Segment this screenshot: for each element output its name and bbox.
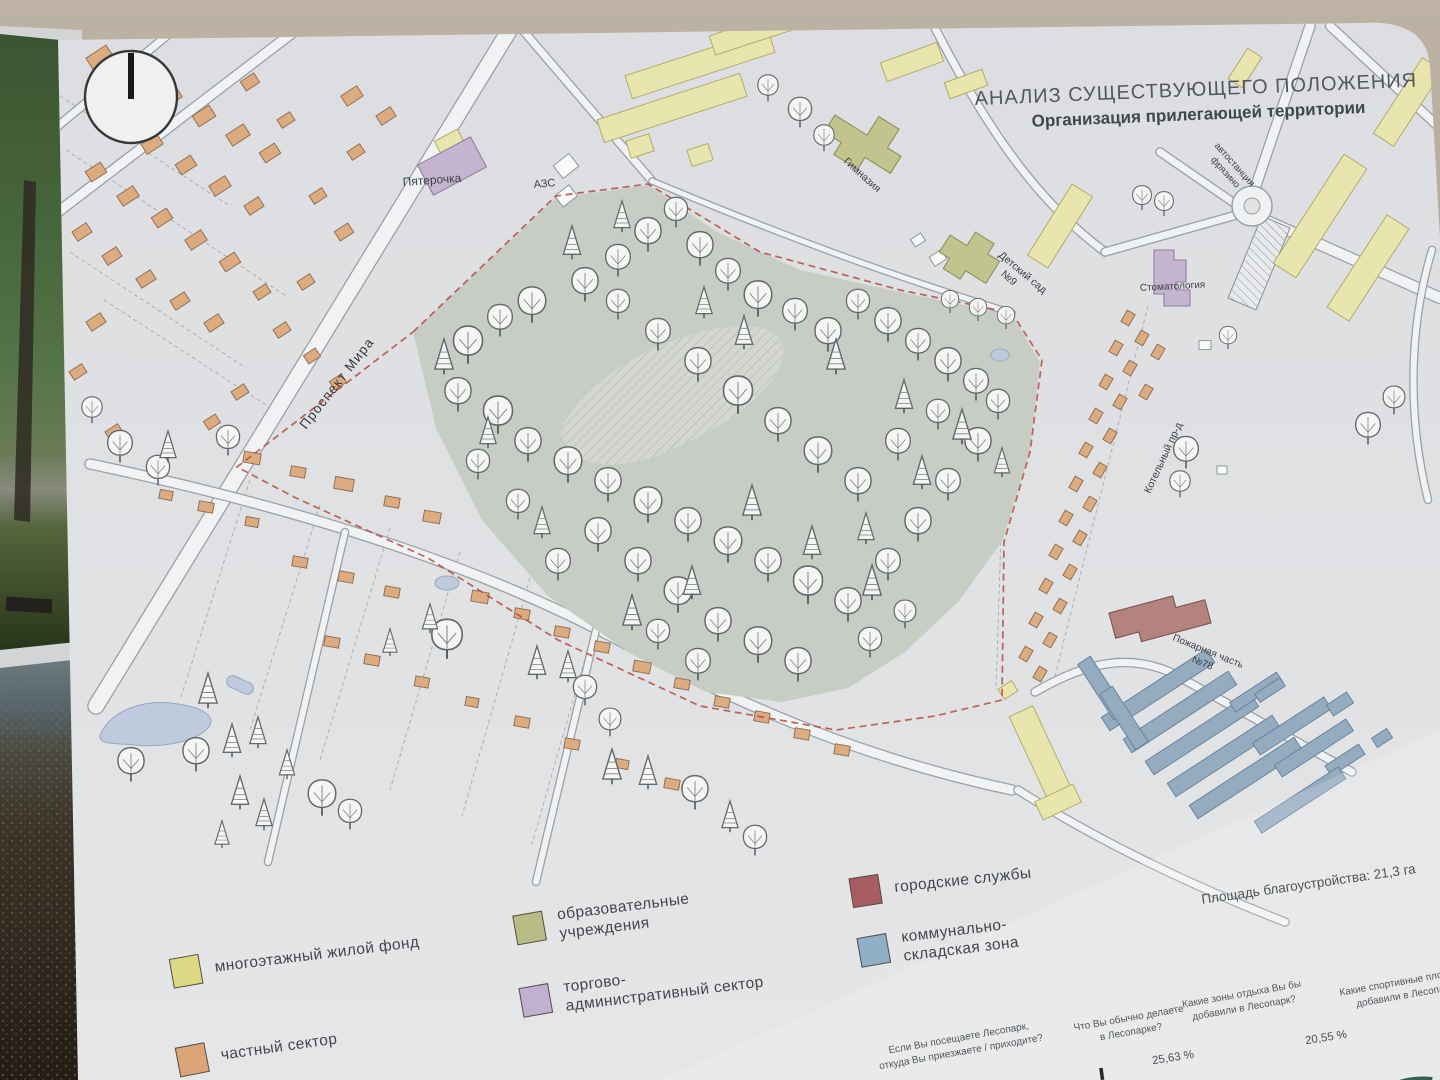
legend-swatch-services bbox=[848, 874, 882, 908]
legend-swatch-commercial bbox=[518, 983, 553, 1018]
legend-swatch-education bbox=[512, 911, 547, 946]
legend-swatch-private bbox=[175, 1042, 210, 1077]
roundabout bbox=[1232, 186, 1272, 226]
legend-swatch-warehouse bbox=[856, 933, 891, 968]
photographed-poster-scene: Пятерочка АЗС Гимназия Детский сад №9 Ст… bbox=[0, 0, 1440, 1080]
compass-north-indicator bbox=[85, 51, 177, 143]
label-azs: АЗС bbox=[533, 177, 556, 191]
legend-swatch-apartments bbox=[169, 954, 204, 989]
